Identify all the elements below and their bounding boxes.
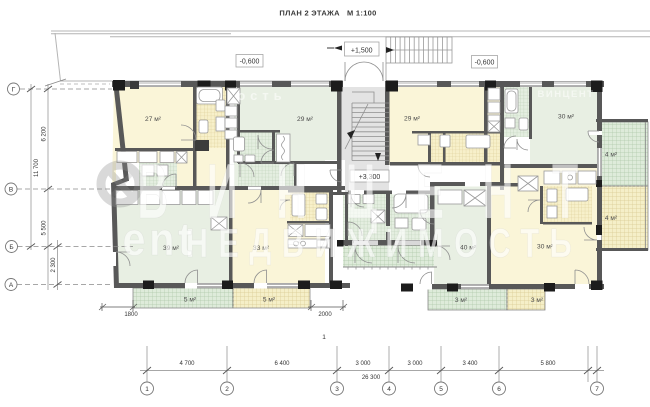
svg-text:26 300: 26 300 — [362, 375, 381, 381]
svg-text:11 700: 11 700 — [34, 158, 40, 177]
svg-text:4: 4 — [387, 386, 391, 393]
svg-text:6 200: 6 200 — [42, 126, 48, 142]
svg-text:2000: 2000 — [318, 312, 332, 318]
svg-text:1: 1 — [322, 334, 326, 341]
svg-text:5 500: 5 500 — [42, 220, 48, 236]
svg-text:2 300: 2 300 — [51, 257, 57, 273]
svg-text:5 м²: 5 м² — [263, 297, 276, 304]
svg-text:Б: Б — [9, 244, 13, 251]
svg-text:5: 5 — [439, 386, 443, 393]
svg-text:3 м²: 3 м² — [531, 297, 544, 304]
svg-text:+1,500: +1,500 — [351, 48, 373, 55]
svg-text:-0,600: -0,600 — [240, 59, 260, 66]
svg-text:5 м²: 5 м² — [184, 297, 197, 304]
svg-text:3 м²: 3 м² — [455, 297, 468, 304]
svg-text:3: 3 — [335, 386, 339, 393]
svg-text:Г: Г — [12, 87, 16, 94]
svg-text:3 000: 3 000 — [407, 361, 423, 367]
svg-text:29 м²: 29 м² — [404, 116, 421, 123]
svg-text:НЕДВИЖИМОСТЬ: НЕДВИЖИМОСТЬ — [186, 220, 583, 266]
svg-text:ent: ent — [123, 214, 196, 266]
svg-text:7: 7 — [595, 386, 599, 393]
svg-text:2: 2 — [225, 386, 229, 393]
svg-text:3 400: 3 400 — [462, 361, 478, 367]
svg-text:6: 6 — [497, 386, 501, 393]
svg-text:1800: 1800 — [124, 312, 138, 318]
svg-text:6 400: 6 400 — [274, 361, 290, 367]
svg-text:А: А — [9, 282, 14, 289]
svg-text:В: В — [9, 187, 13, 194]
svg-text:4 700: 4 700 — [179, 361, 195, 367]
svg-text:27 м²: 27 м² — [145, 116, 162, 123]
svg-text:ость: ость — [237, 88, 286, 103]
svg-text:ВИНЦЕНТ: ВИНЦЕНТ — [538, 89, 595, 100]
svg-text:30 м²: 30 м² — [558, 114, 575, 121]
svg-text:ПЛАН 2 ЭТАЖА М 1:100: ПЛАН 2 ЭТАЖА М 1:100 — [279, 9, 376, 18]
svg-text:1: 1 — [145, 386, 149, 393]
svg-text:29 м²: 29 м² — [297, 116, 314, 123]
svg-text:-0,600: -0,600 — [475, 60, 495, 67]
svg-text:5 800: 5 800 — [540, 361, 556, 367]
svg-text:3 000: 3 000 — [355, 361, 371, 367]
